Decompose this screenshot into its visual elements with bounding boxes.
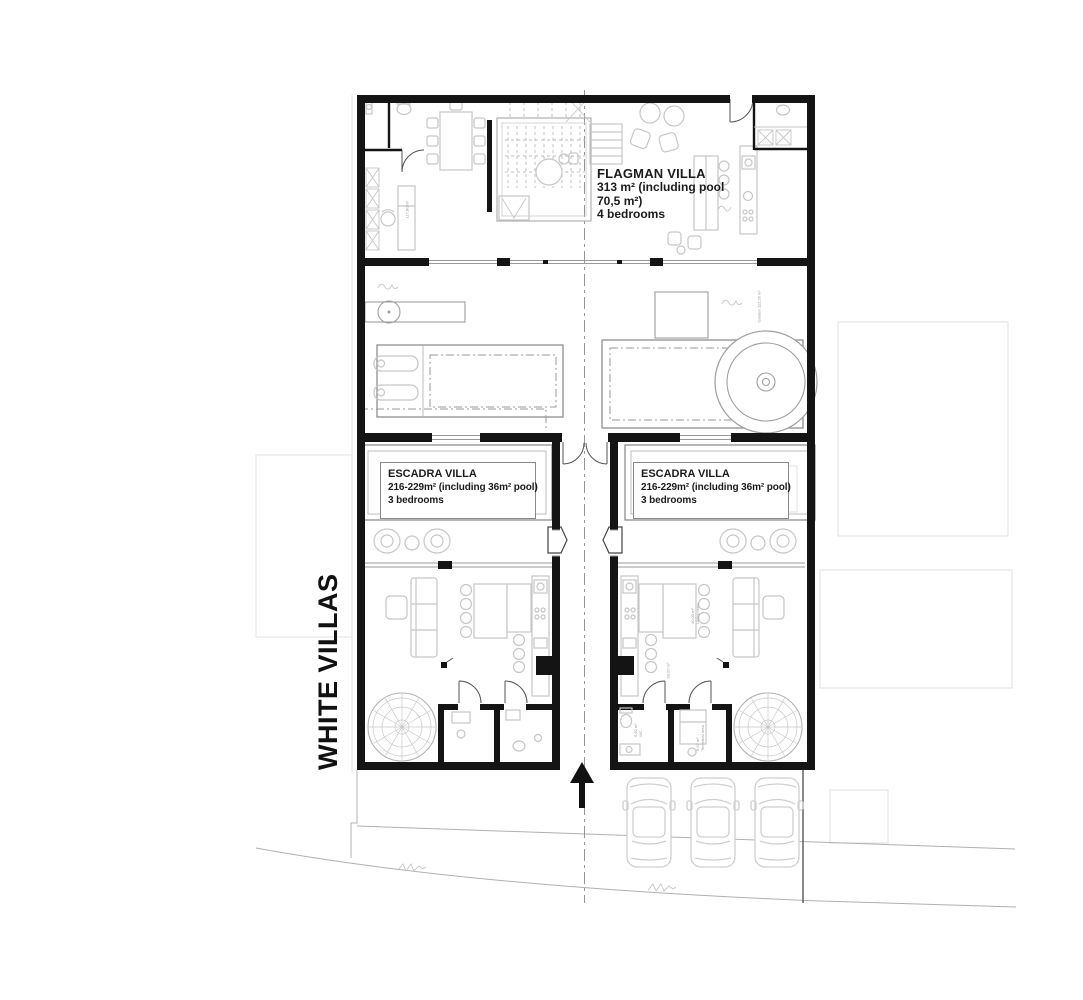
terrace-chair	[424, 529, 450, 553]
living-area-label: Living room	[696, 603, 701, 624]
round-table-icon	[536, 159, 562, 185]
flagman-wardrobe	[366, 168, 379, 250]
flagman-villa-label: FLAGMAN VILLA 313 m² (including pool 70,…	[597, 166, 724, 222]
tech-area-label: Technical area	[701, 725, 706, 751]
escadra-right-label-box: ESCADRA VILLA 216-229m² (including 36m² …	[633, 462, 789, 519]
terrace-chair	[770, 529, 796, 553]
flagman-room-area-note: 117,80 m²	[406, 201, 411, 219]
escadra-left-label-box: ESCADRA VILLA 216-229m² (including 36m² …	[380, 462, 536, 519]
flagman-lounge-chairs	[629, 103, 684, 153]
entrance-arrow	[570, 762, 594, 808]
central-double-door	[563, 442, 607, 464]
kitchen-island	[507, 584, 531, 632]
flagman-villa-area-line1: 313 m² (including pool	[597, 181, 724, 195]
garden-area-note: Garden 112,26 m²	[758, 290, 763, 322]
escadra-left-bedrooms: 3 bedrooms	[388, 494, 535, 507]
floor-plan-canvas: WHITE VILLAS FLAGMAN VILLA 313 m² (inclu…	[0, 0, 1083, 1000]
flagman-top-right-room	[730, 95, 807, 150]
car-icon	[623, 778, 675, 867]
plant-icon	[378, 284, 398, 289]
office-chair-icon	[381, 212, 395, 226]
flagman-villa-area-line2: 70,5 m²)	[597, 195, 724, 209]
escadra-right-area: 216-229m² (including 36m² pool)	[641, 481, 788, 494]
sink-icon	[452, 712, 470, 723]
wc-area-label: WC	[639, 723, 644, 737]
kitchen-counter	[621, 576, 638, 696]
flagman-villa-plan	[357, 95, 815, 266]
entrance-marker	[548, 527, 567, 553]
car-icon	[687, 778, 739, 867]
terrace-chair	[720, 529, 746, 553]
escadra-right-living	[610, 576, 784, 696]
flagman-stairs	[590, 124, 622, 164]
sink-icon	[620, 744, 640, 755]
escadra-right-name: ESCADRA VILLA	[641, 467, 788, 481]
armchair-icon	[763, 596, 784, 619]
terrace-chair	[374, 529, 400, 553]
terrace-table	[405, 536, 419, 550]
escadra-left-area: 216-229m² (including 36m² pool)	[388, 481, 535, 494]
escadra-left-spiral-stair	[368, 693, 436, 761]
escadra-left-name: ESCADRA VILLA	[388, 467, 535, 481]
site-title: WHITE VILLAS	[313, 574, 344, 771]
escadra-left-terrace	[374, 527, 567, 553]
dining-table	[474, 584, 507, 638]
sofa-icon	[411, 578, 437, 657]
flagman-villa-bedrooms: 4 bedrooms	[597, 208, 724, 222]
door-swing	[730, 99, 753, 122]
road-edge-upper	[357, 826, 1015, 849]
plant-icon	[722, 300, 742, 305]
flagman-dining-set	[427, 101, 485, 170]
garden-court	[357, 266, 817, 433]
floor-plan-drawing	[0, 0, 1083, 1000]
toilet-icon	[777, 105, 790, 115]
escadra-left-living	[386, 576, 560, 696]
sofa-icon	[733, 578, 759, 657]
car-icon	[751, 778, 803, 867]
vegetation-mark	[648, 884, 676, 891]
escadra-right-terrace	[603, 527, 796, 553]
kitchen-area-note: 90,20 m²	[667, 663, 672, 679]
armchair-icon	[386, 596, 407, 619]
technical-area-note: 5,97 m² Technical area	[696, 725, 705, 751]
living-room-area-note: 40,00 m² Living room	[691, 603, 700, 624]
plot-edge-line	[351, 770, 357, 858]
garden-deck	[655, 292, 708, 338]
toilet-icon	[513, 741, 525, 751]
entrance-marker	[603, 527, 622, 553]
kitchen-counter	[532, 576, 549, 696]
flagman-bathroom	[357, 95, 424, 172]
terrace-table	[751, 536, 765, 550]
jacuzzi	[715, 331, 817, 433]
kitchen-island	[639, 584, 663, 632]
wc-area-note: 5,60 m² WC	[634, 723, 643, 737]
escadra-right-spiral-stair	[734, 693, 802, 761]
flagman-villa-name: FLAGMAN VILLA	[597, 166, 724, 181]
toilet-icon	[397, 104, 411, 115]
parking-area	[623, 778, 803, 867]
escadra-right-bedrooms: 3 bedrooms	[641, 494, 788, 507]
flagman-atrium	[487, 96, 591, 221]
toilet-icon	[621, 715, 632, 728]
